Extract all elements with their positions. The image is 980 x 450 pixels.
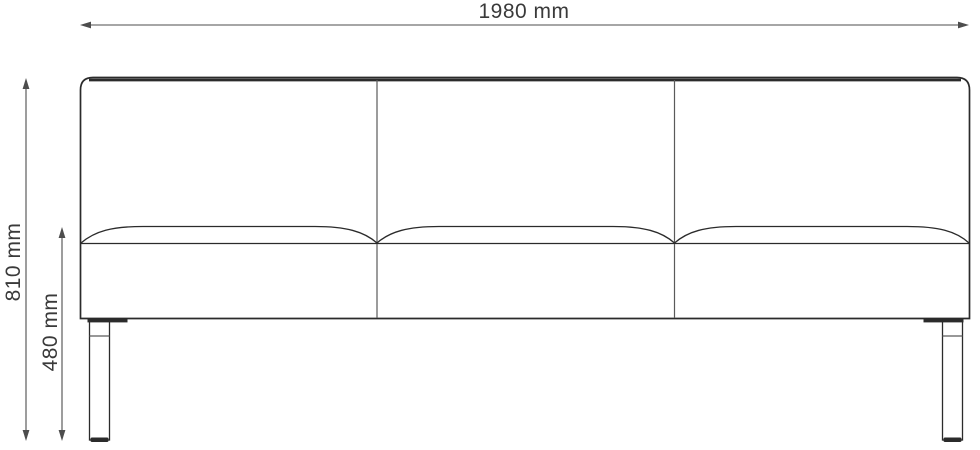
- overall-height-dimension-label: 810 mm: [2, 223, 26, 302]
- seat-height-dimension-label: 480 mm: [39, 293, 63, 372]
- overall-height-arrow-down-icon: [23, 430, 30, 441]
- left-leg-mounting-plate: [88, 319, 128, 323]
- width-dimension-label: 1980 mm: [478, 0, 569, 24]
- overall-height-arrow-up-icon: [23, 78, 30, 89]
- sofa-body: [81, 78, 970, 319]
- sofa-outline: [81, 78, 970, 319]
- right-leg-mounting-plate: [924, 319, 964, 323]
- seat-height-arrow-down-icon: [59, 430, 66, 441]
- dimension-drawing-canvas: 1980 mm 810 mm 480 mm: [0, 0, 980, 450]
- seat-height-arrow-up-icon: [59, 227, 66, 238]
- width-arrow-right-icon: [958, 22, 969, 29]
- left-leg: [90, 321, 110, 440]
- left-leg-foot: [91, 438, 109, 443]
- right-leg: [943, 321, 963, 440]
- right-leg-foot: [944, 438, 962, 443]
- sofa-line-drawing: [0, 0, 980, 450]
- width-arrow-left-icon: [80, 22, 91, 29]
- sofa-legs: [88, 319, 964, 442]
